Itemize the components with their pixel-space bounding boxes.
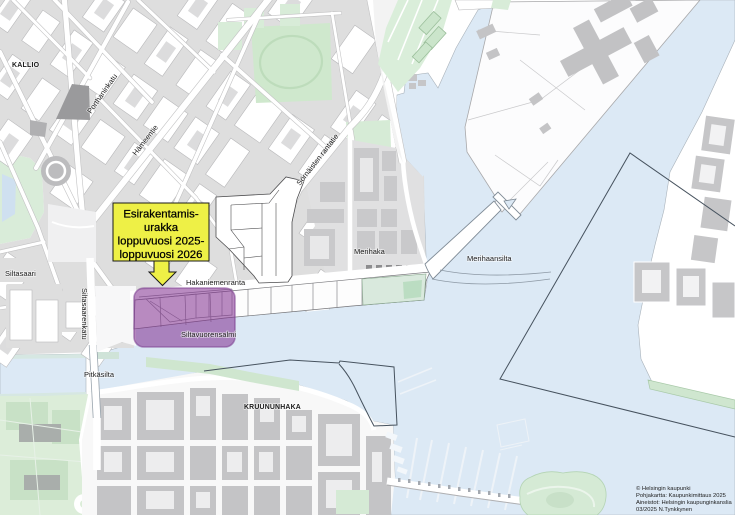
svg-text:Hakaniemenranta: Hakaniemenranta	[186, 278, 246, 287]
svg-text:Siltavuorensalmi: Siltavuorensalmi	[181, 330, 236, 339]
svg-text:© Helsingin kaupunki: © Helsingin kaupunki	[636, 485, 691, 492]
svg-text:Merihaansilta: Merihaansilta	[467, 254, 512, 263]
svg-text:Pitkäsilta: Pitkäsilta	[84, 370, 115, 379]
svg-text:urakka: urakka	[144, 222, 179, 234]
svg-text:Siltasaari: Siltasaari	[5, 269, 36, 278]
svg-text:Aineistot: Helsingin kaupungin: Aineistot: Helsingin kaupunginkanslia	[636, 500, 732, 506]
svg-text:KRUUNUNHAKA: KRUUNUNHAKA	[244, 404, 301, 411]
svg-text:Siltasaarenkatu: Siltasaarenkatu	[80, 288, 89, 340]
svg-text:loppuvuosi 2025-: loppuvuosi 2025-	[118, 236, 205, 248]
svg-text:KALLIO: KALLIO	[12, 62, 40, 69]
svg-text:loppuvuosi 2026: loppuvuosi 2026	[120, 249, 203, 261]
svg-text:Pohjakartta: Kaupunkimittaus 2: Pohjakartta: Kaupunkimittaus 2025	[636, 493, 726, 499]
svg-text:Esirakentamis-: Esirakentamis-	[123, 209, 199, 221]
svg-text:Merihaka: Merihaka	[354, 247, 386, 256]
svg-text:03/2025 N.Tynkkynen: 03/2025 N.Tynkkynen	[636, 507, 692, 513]
